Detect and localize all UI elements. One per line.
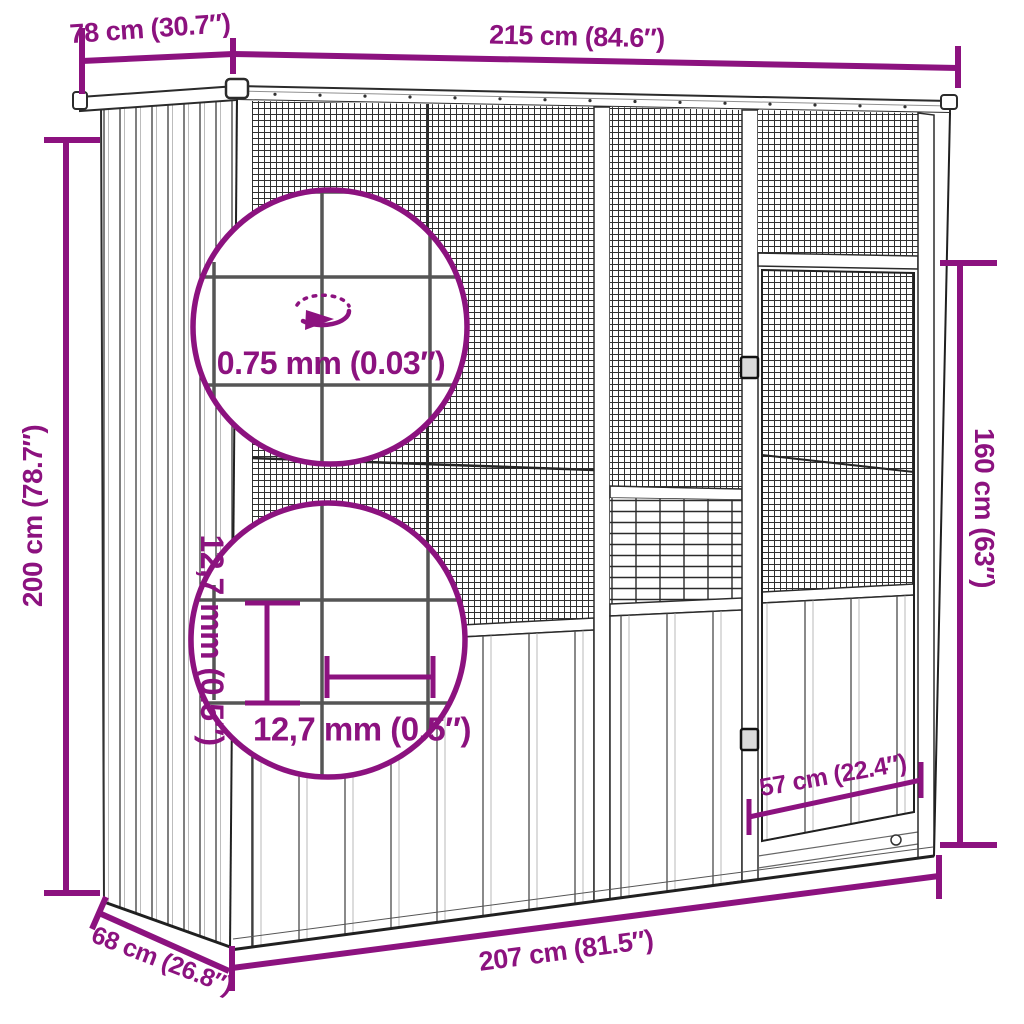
aviary-dimension-diagram: 78 cm (30.7″) 215 cm (84.6″) 200 cm (78.… [0, 0, 1024, 1024]
frame-post-center [594, 107, 610, 901]
dimension-label-mesh-spacing-horizontal: 12,7 mm (0.5″) [253, 713, 471, 746]
dim-roof-width [233, 46, 958, 88]
side-panel [101, 90, 237, 948]
door-roller [891, 835, 901, 845]
roof-cap-right [941, 95, 957, 109]
frame-post-door-left [742, 110, 758, 881]
door-hinge-icon-top [741, 357, 758, 378]
dimension-label-total-height: 200 cm (78.7″) [19, 425, 47, 607]
dimension-label-mesh-spacing-vertical: 12,7 mm (0.5″) [196, 534, 228, 745]
door-hinge-icon-bottom [741, 729, 758, 750]
dimension-label-door-height: 160 cm (63″) [970, 428, 998, 588]
mesh-panel-middle [610, 107, 742, 899]
detail-circle-wire-gauge [193, 190, 467, 464]
coarse-grid-panel [610, 498, 742, 604]
dim-total-height [44, 140, 100, 893]
dimension-label-roof-width: 215 cm (84.6″) [489, 22, 665, 53]
aviary-line-drawing [0, 0, 1024, 1024]
roof-cap-left [73, 92, 87, 109]
dimension-label-wire-diameter: 0.75 mm (0.03″) [217, 347, 445, 379]
roof-bracket-front-left [226, 79, 248, 98]
frame-post-right [918, 113, 934, 858]
